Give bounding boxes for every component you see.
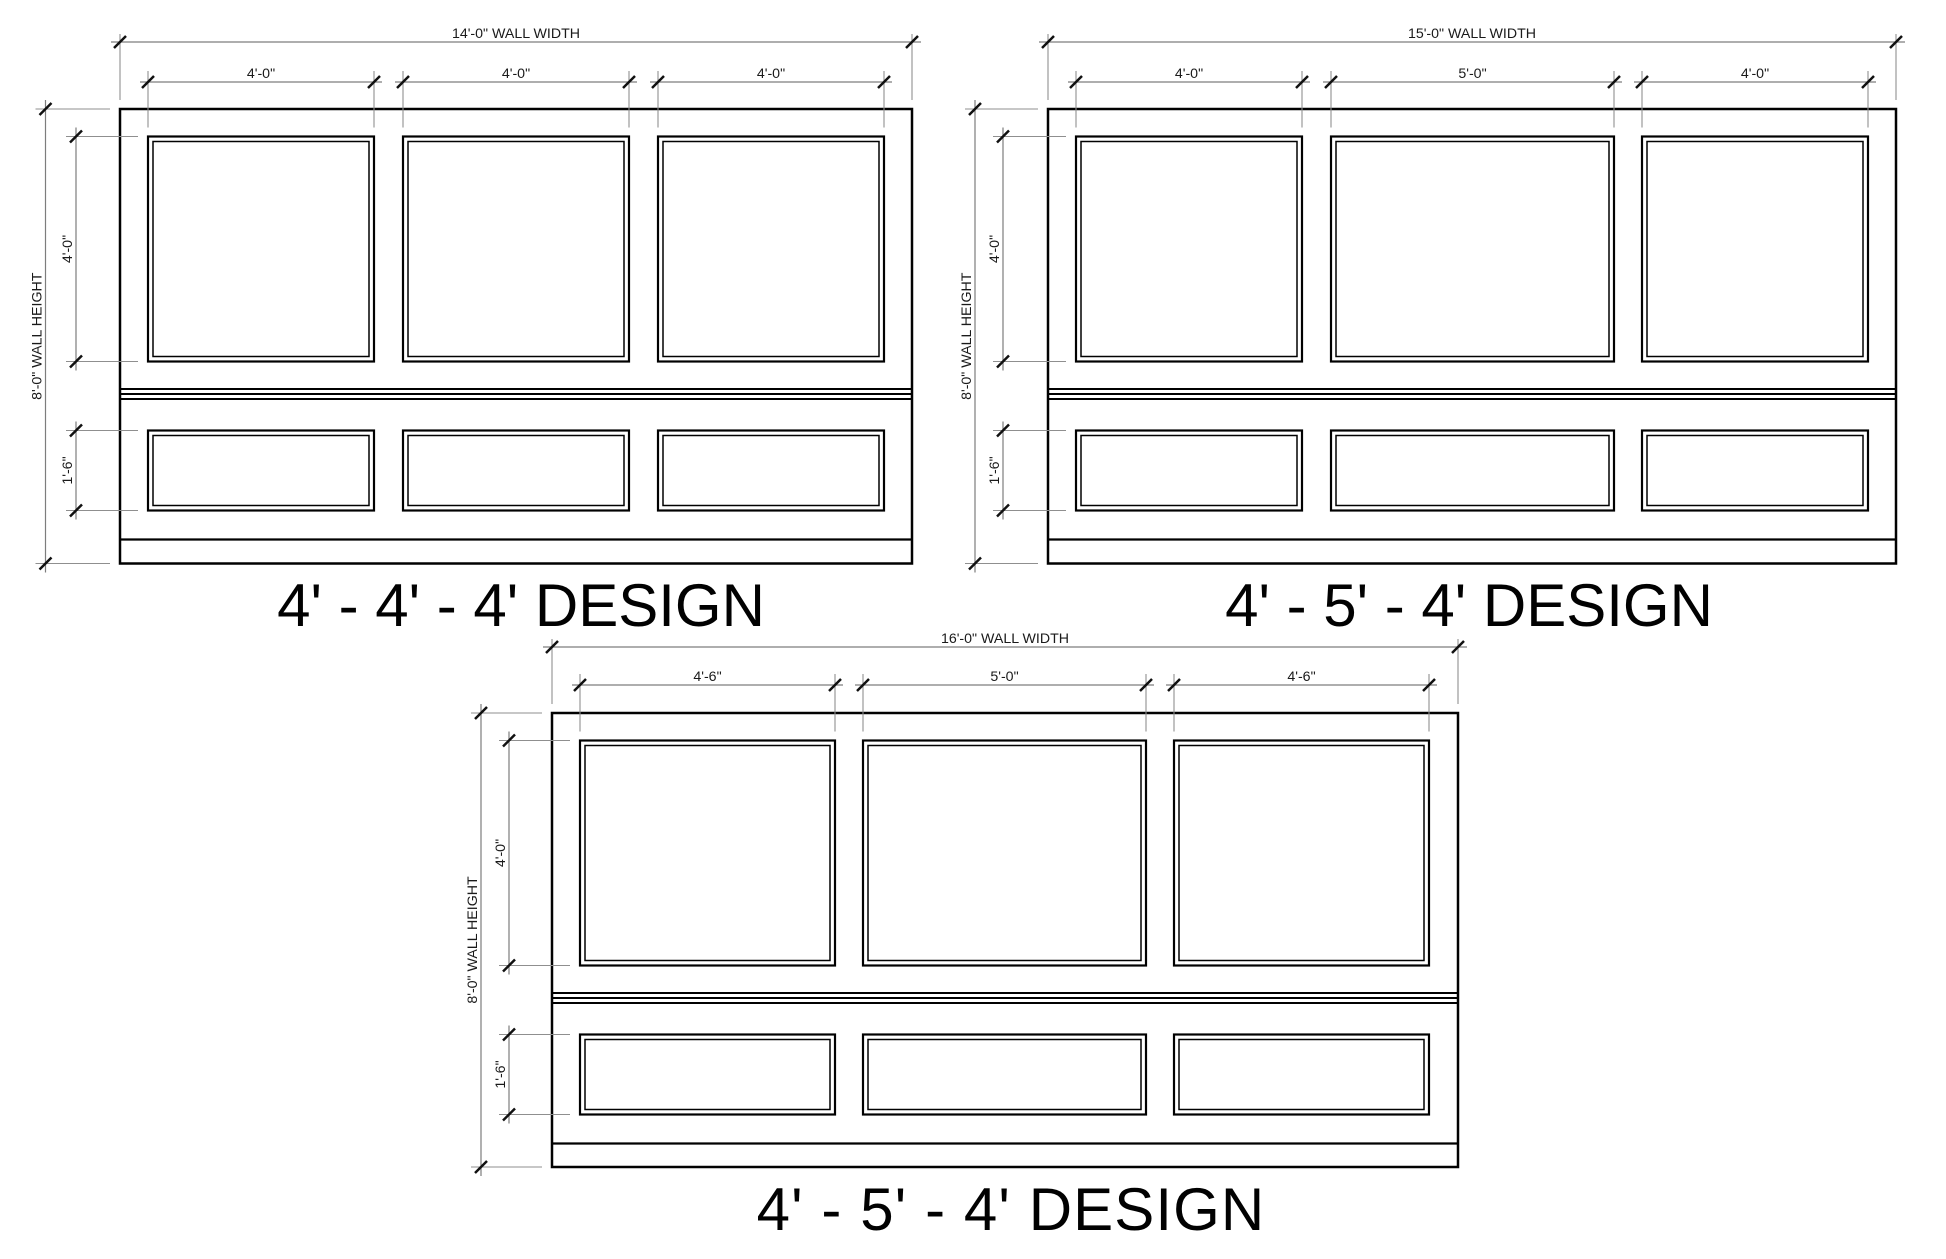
- svg-text:4'-0": 4'-0": [1175, 66, 1203, 82]
- svg-text:4'-6": 4'-6": [1287, 669, 1315, 685]
- svg-text:4'-6": 4'-6": [693, 669, 721, 685]
- svg-text:1'-6": 1'-6": [60, 456, 76, 484]
- svg-text:8'-0" WALL HEIGHT: 8'-0" WALL HEIGHT: [30, 272, 46, 400]
- svg-text:14'-0" WALL WIDTH: 14'-0" WALL WIDTH: [452, 26, 580, 42]
- svg-text:1'-6": 1'-6": [987, 456, 1003, 484]
- svg-text:4'-0": 4'-0": [757, 66, 785, 82]
- svg-text:8'-0" WALL HEIGHT: 8'-0" WALL HEIGHT: [959, 272, 975, 400]
- svg-text:5'-0": 5'-0": [1458, 66, 1486, 82]
- svg-text:4'-0": 4'-0": [60, 235, 76, 263]
- svg-text:4' - 5' - 4' DESIGN: 4' - 5' - 4' DESIGN: [757, 1176, 1266, 1243]
- svg-text:4'-0": 4'-0": [493, 839, 509, 867]
- svg-text:15'-0" WALL WIDTH: 15'-0" WALL WIDTH: [1408, 26, 1536, 42]
- svg-text:4' - 4' - 4' DESIGN: 4' - 4' - 4' DESIGN: [277, 572, 765, 639]
- svg-text:4'-0": 4'-0": [1741, 66, 1769, 82]
- svg-text:16'-0" WALL WIDTH: 16'-0" WALL WIDTH: [941, 631, 1069, 647]
- svg-text:4' - 5' - 4' DESIGN: 4' - 5' - 4' DESIGN: [1225, 572, 1713, 639]
- svg-text:5'-0": 5'-0": [990, 669, 1018, 685]
- svg-text:4'-0": 4'-0": [987, 235, 1003, 263]
- svg-text:1'-6": 1'-6": [493, 1060, 509, 1088]
- svg-text:8'-0" WALL HEIGHT: 8'-0" WALL HEIGHT: [465, 876, 481, 1004]
- svg-text:4'-0": 4'-0": [502, 66, 530, 82]
- svg-text:4'-0": 4'-0": [247, 66, 275, 82]
